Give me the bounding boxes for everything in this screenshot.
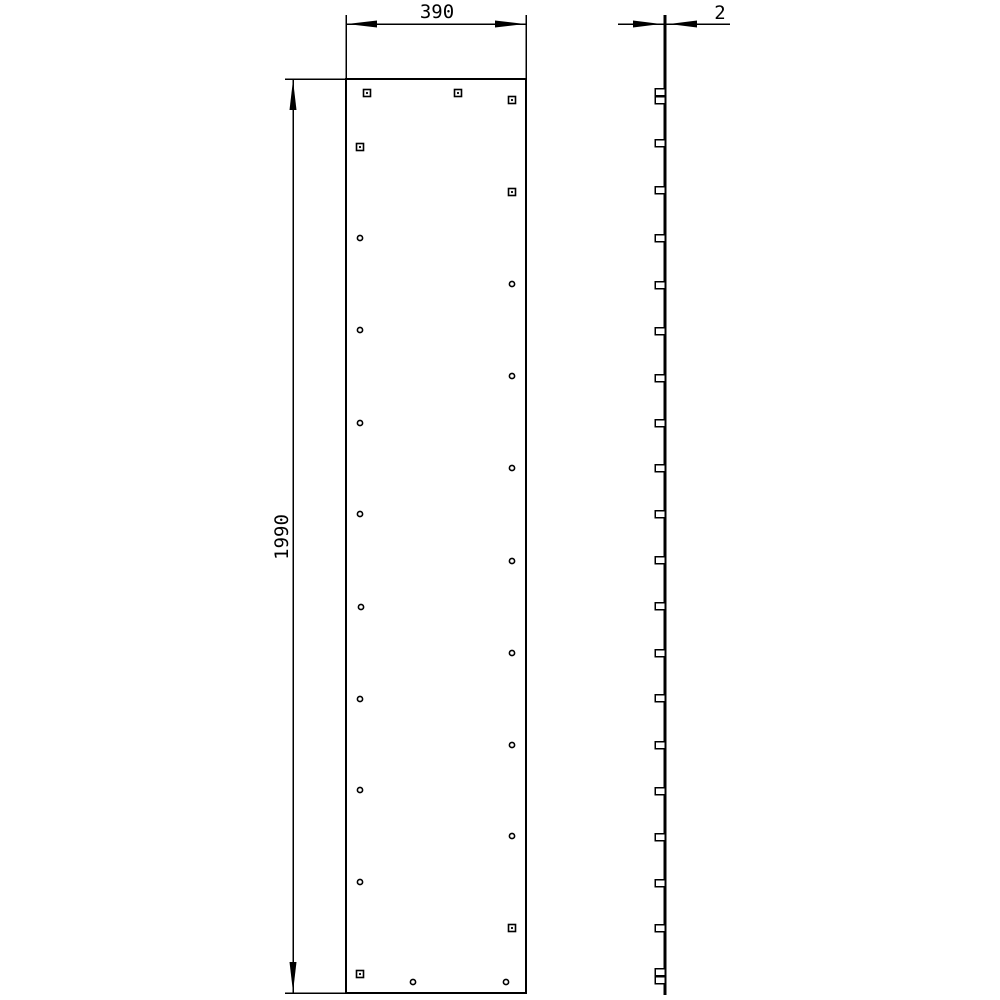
side-clip-tab [655,834,665,841]
panel-hole-round [509,558,514,563]
side-clip-tab [655,140,665,147]
panel-hole-round [358,604,363,609]
panel-hole-round [509,465,514,470]
side-clip-tab [655,511,665,518]
panel-hole-round [357,511,362,516]
front-view [346,79,526,993]
side-clip-tab [655,420,665,427]
panel-drawing: 390 1990 2 [0,0,1000,1000]
thickness-dim-label: 2 [714,2,725,24]
panel-hole-round [357,696,362,701]
side-clip-tab [655,695,665,702]
arrowhead-left [633,21,661,28]
panel-hole-round [509,373,514,378]
hole-center-mark [511,191,513,193]
arrowhead-bottom [290,962,297,992]
hole-center-mark [359,146,361,148]
side-clip-tab [655,187,665,194]
arrowhead-right [495,21,525,28]
panel-hole-round [357,235,362,240]
hole-center-mark [366,92,368,94]
panel-hole-round [357,787,362,792]
panel-hole-round [357,327,362,332]
arrowhead-top [290,80,297,110]
hole-center-mark [511,99,513,101]
height-dim-label: 1990 [271,514,293,560]
hole-center-mark [511,927,513,929]
side-clip-tab [655,465,665,472]
side-clip-tab [655,235,665,242]
panel-hole-round [509,650,514,655]
panel-hole-round [503,979,508,984]
panel-hole-round [410,979,415,984]
panel-outline [346,79,526,993]
panel-holes [357,90,516,985]
side-clip-tab [655,880,665,887]
panel-hole-round [509,281,514,286]
side-clip-tab [655,742,665,749]
arrowhead-right [669,21,697,28]
side-clip-tab [655,969,665,976]
hole-center-mark [457,92,459,94]
side-clip-tab [655,375,665,382]
side-clip-tab [655,557,665,564]
side-clip-tab [655,328,665,335]
panel-hole-round [357,420,362,425]
arrowhead-left [347,21,377,28]
drawing-canvas: 390 1990 2 [0,0,1000,1000]
panel-hole-round [357,879,362,884]
side-clip-tab [655,97,665,104]
side-view [655,15,665,995]
side-clip-tab [655,977,665,984]
side-clip-tab [655,282,665,289]
hole-center-mark [359,973,361,975]
side-clip-tab [655,788,665,795]
side-clip-tab [655,603,665,610]
panel-hole-round [509,833,514,838]
width-dimension: 390 [346,1,526,79]
panel-hole-round [509,742,514,747]
side-clip-tab [655,89,665,96]
side-clip-tab [655,650,665,657]
width-dim-label: 390 [420,1,454,23]
side-clip-tab [655,925,665,932]
thickness-dimension: 2 [618,2,730,28]
height-dimension: 1990 [271,79,346,993]
